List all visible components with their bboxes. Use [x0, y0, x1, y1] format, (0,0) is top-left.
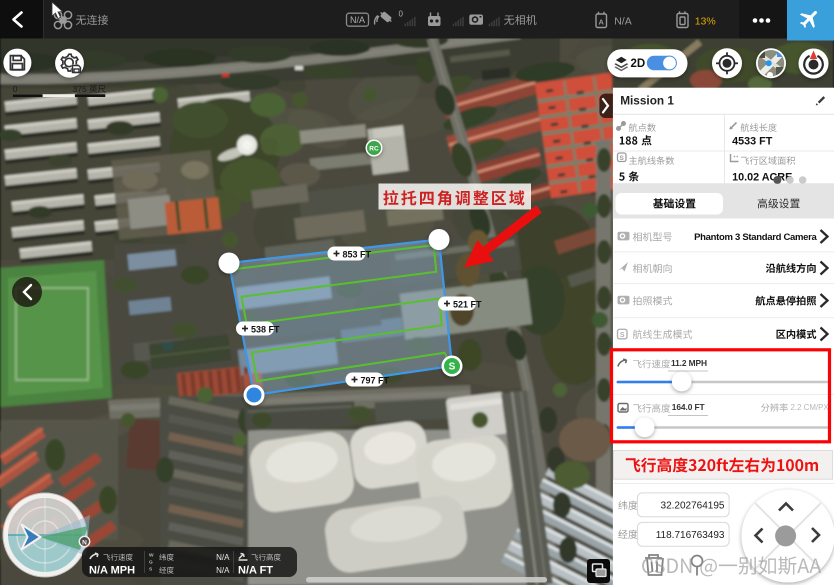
svg-text:2.2 CM/PX: 2.2 CM/PX: [791, 403, 830, 412]
svg-text:10.02 ACRE: 10.02 ACRE: [732, 172, 792, 184]
svg-text:2D: 2D: [631, 58, 646, 70]
svg-text:164.0 FT: 164.0 FT: [672, 402, 706, 412]
svg-text:853 FT: 853 FT: [343, 249, 372, 259]
svg-text:538 FT: 538 FT: [251, 324, 280, 334]
svg-text:G: G: [149, 560, 153, 566]
svg-text:N/A FT: N/A FT: [238, 565, 273, 577]
svg-text:797 FT: 797 FT: [361, 375, 390, 385]
svg-text:32.202764195: 32.202764195: [661, 501, 725, 512]
svg-text:N/A: N/A: [216, 553, 230, 562]
svg-text:0: 0: [399, 10, 404, 19]
svg-text:11.2 MPH: 11.2 MPH: [671, 358, 707, 368]
svg-text:N/A: N/A: [350, 15, 365, 25]
svg-text:Mission 1: Mission 1: [620, 94, 674, 108]
svg-text:375: 375: [73, 84, 87, 94]
svg-text:W: W: [149, 553, 154, 559]
svg-text:4533 FT: 4533 FT: [732, 136, 773, 148]
svg-text:N/A: N/A: [614, 15, 632, 27]
svg-text:521 FT: 521 FT: [453, 299, 482, 309]
svg-text:RC: RC: [369, 146, 379, 153]
svg-text:N/A MPH: N/A MPH: [89, 565, 135, 577]
svg-text:S: S: [449, 362, 456, 373]
svg-text:0: 0: [13, 84, 18, 94]
svg-text:N: N: [82, 539, 87, 546]
svg-text:Phantom 3 Standard Camera: Phantom 3 Standard Camera: [694, 232, 817, 243]
svg-text:S: S: [620, 332, 625, 339]
svg-text:118.716763493: 118.716763493: [656, 530, 725, 541]
svg-text:13%: 13%: [695, 15, 716, 27]
svg-text:N/A: N/A: [216, 566, 230, 575]
svg-text:S: S: [620, 155, 625, 162]
svg-text:A: A: [598, 17, 604, 26]
